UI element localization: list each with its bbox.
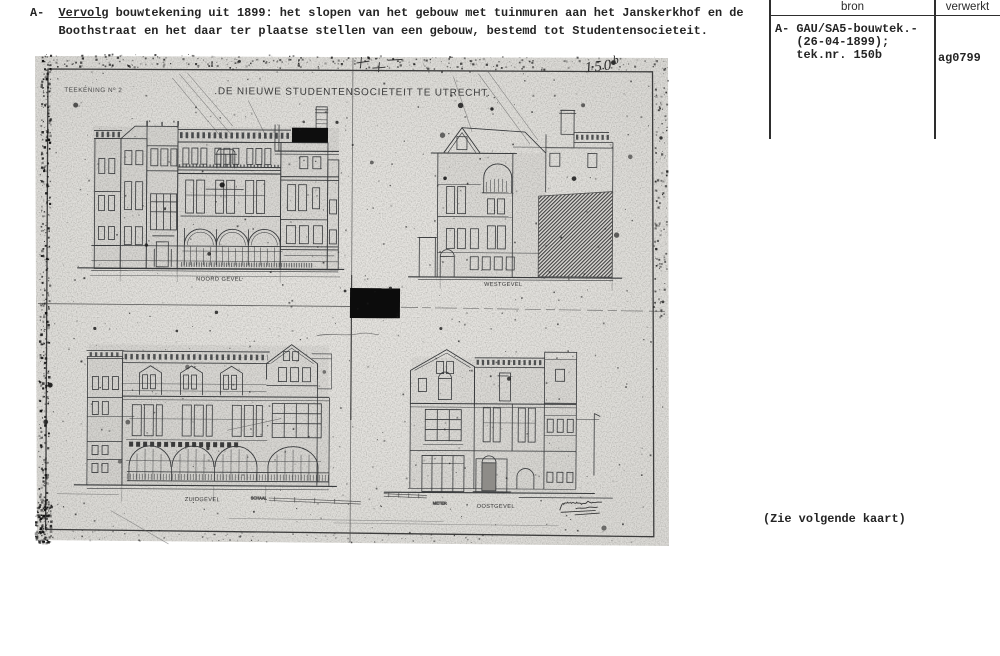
svg-text:ZUIDGEVEL: ZUIDGEVEL [185, 497, 220, 503]
svg-text:TEEKENING Nº 2: TEEKENING Nº 2 [64, 87, 122, 94]
svg-text:METER: METER [433, 501, 447, 506]
svg-text:SCHAAL: SCHAAL [251, 495, 268, 500]
svg-text:OOSTGEVEL: OOSTGEVEL [477, 504, 515, 510]
svg-text:.DE NIEUWE STUDENTENSOCIETEIT: .DE NIEUWE STUDENTENSOCIETEIT TE UTRECHT… [214, 86, 490, 99]
svg-text:WESTGEVEL: WESTGEVEL [484, 282, 522, 288]
svg-text:NOORD GEVEL: NOORD GEVEL [196, 277, 243, 283]
